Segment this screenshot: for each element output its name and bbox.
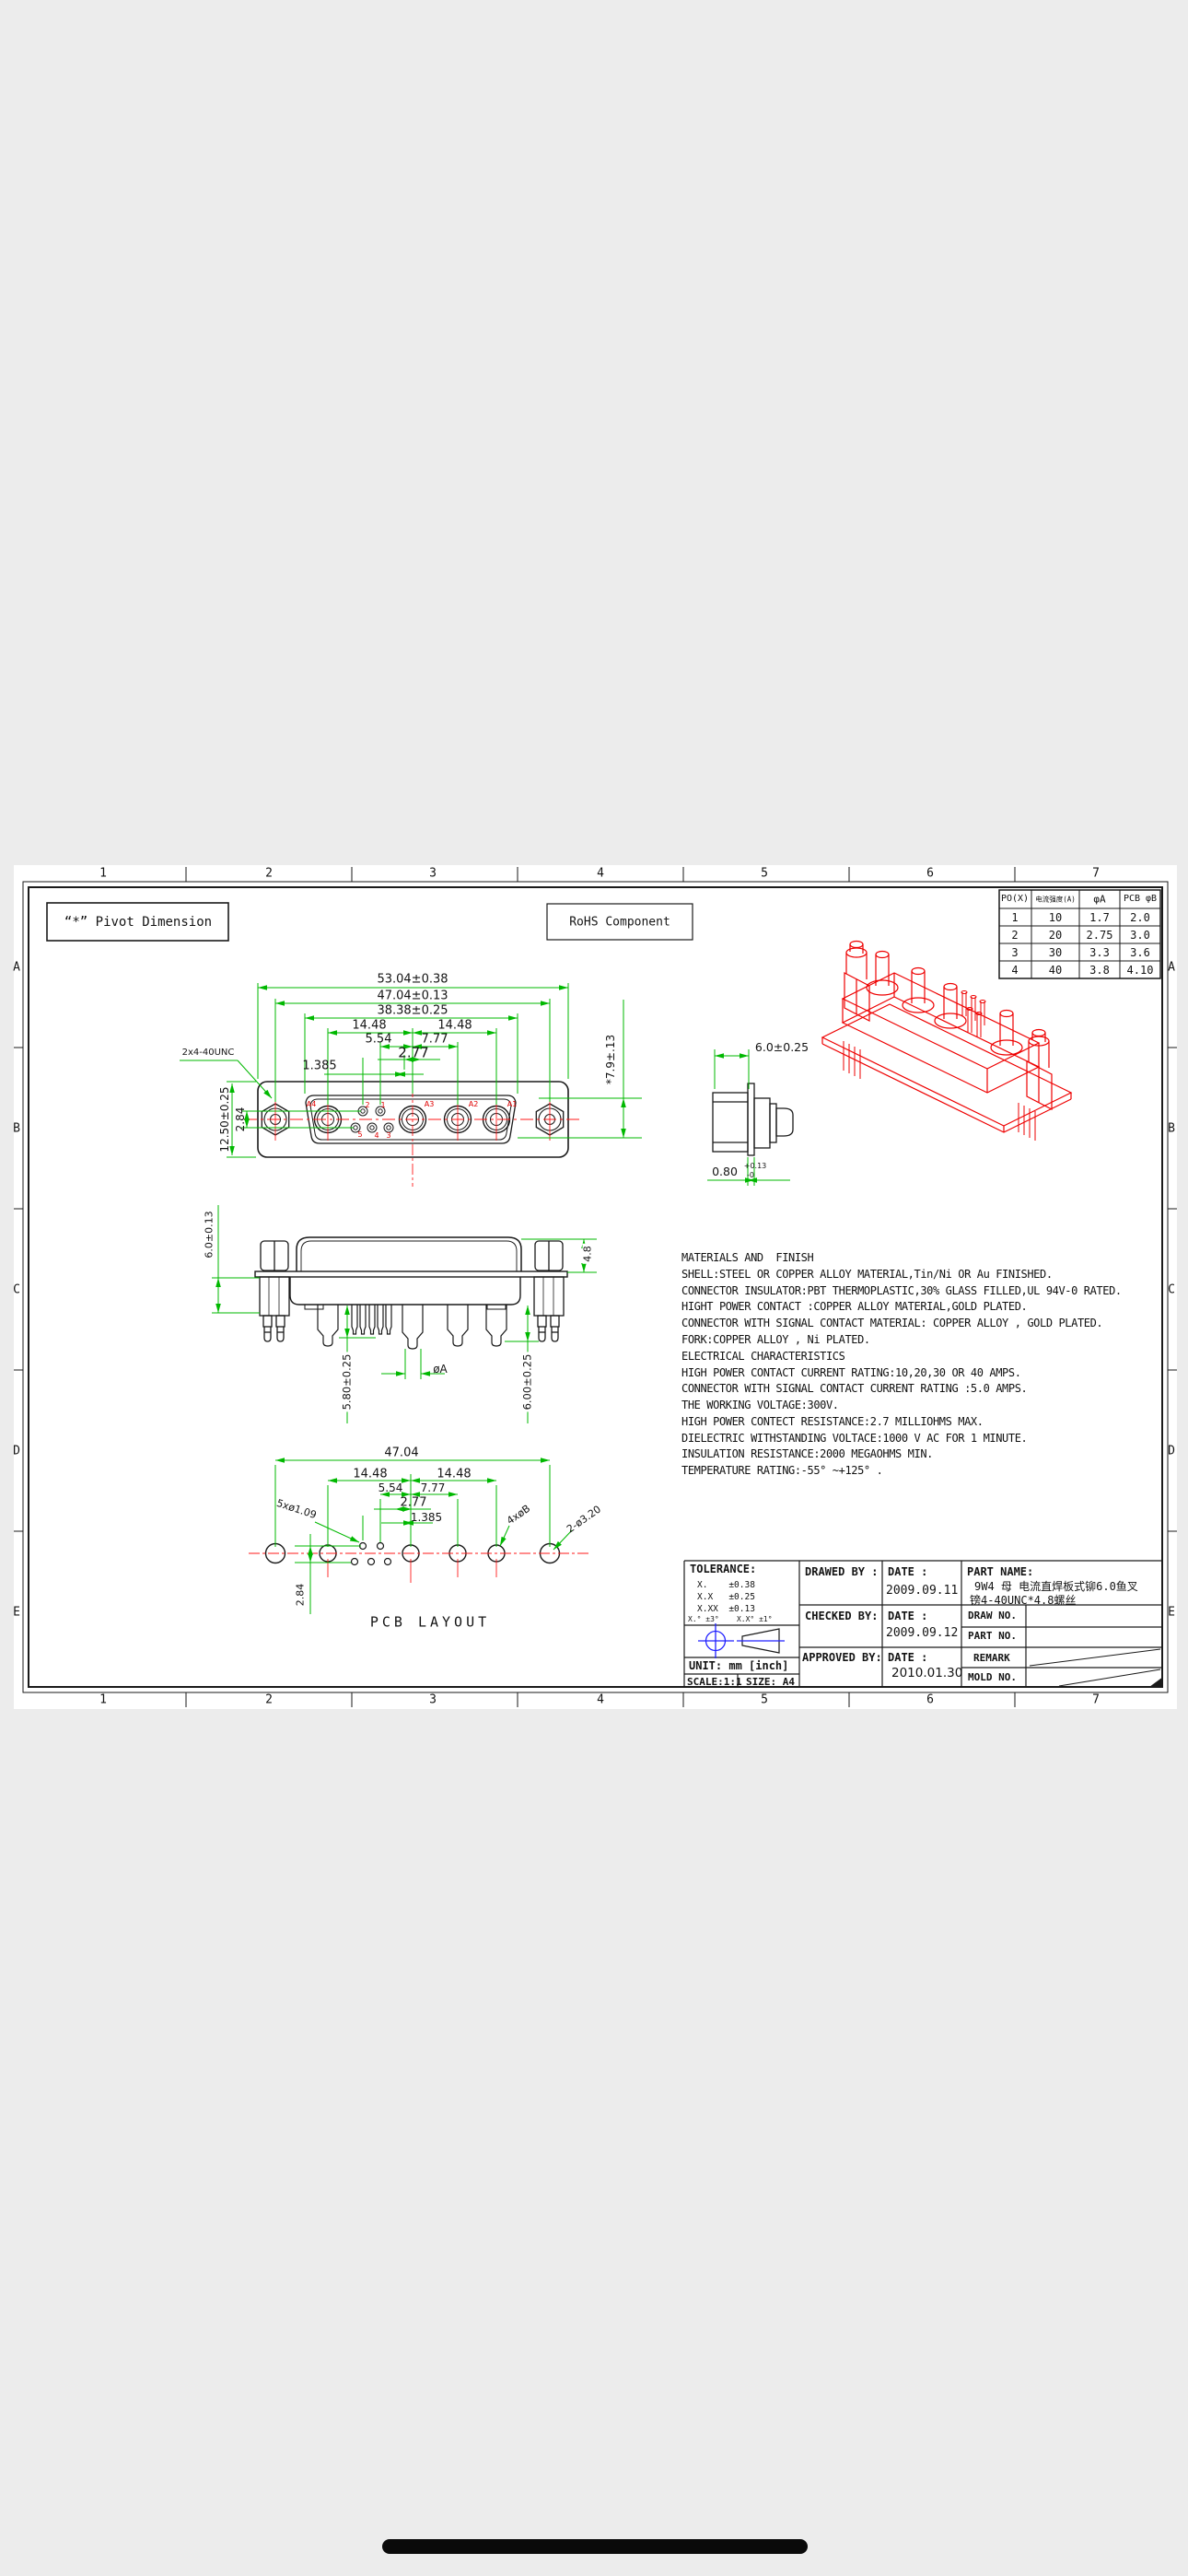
- col-label-bottom: 4: [597, 1694, 604, 1706]
- col-label-bottom: 5: [761, 1694, 768, 1706]
- dim-overall-width: 53.04±0.38: [377, 974, 448, 986]
- dim-pitch-left: 14.48: [352, 1020, 386, 1032]
- table-header: PO(X): [1001, 895, 1029, 904]
- tolerance-row: X. ±0.38: [697, 1581, 755, 1590]
- table-cell: 3.3: [1089, 947, 1110, 958]
- row-label-left: D: [13, 1446, 20, 1458]
- side-view-outline: [713, 1083, 793, 1155]
- tolerance-label: TOLERANCE:: [690, 1563, 756, 1575]
- pcb-dim-4704: 47.04: [384, 1447, 418, 1459]
- dim-mount-span: 47.04±0.13: [377, 990, 448, 1002]
- table-cell: 3.0: [1130, 930, 1150, 941]
- tolerance-angle-row: X.° ±3° X.X° ±1°: [688, 1616, 773, 1623]
- date-drawed: 2009.09.11: [886, 1585, 958, 1597]
- row-label-right: E: [1168, 1607, 1175, 1619]
- dim-flange: 0.80: [712, 1166, 738, 1178]
- table-cell: 1: [1011, 912, 1018, 923]
- dim-row-gap: 2.84: [235, 1107, 246, 1132]
- pcb-dim-14b: 14.48: [437, 1469, 471, 1481]
- col-label-top: 2: [265, 868, 273, 880]
- dim-shell-height: 4.8: [583, 1244, 593, 1264]
- date-label-approved: DATE :: [888, 1652, 927, 1663]
- scale-label: SCALE:1:1: [687, 1677, 742, 1687]
- materials-line: CONNECTOR INSULATOR:PBT THERMOPLASTIC,30…: [681, 1284, 1122, 1297]
- part-name-line2: 镑4-40UNC*4.8螺丝: [970, 1595, 1076, 1606]
- dim-pitch-right: 14.48: [437, 1020, 472, 1032]
- pin-label-a4: A4: [307, 1101, 317, 1108]
- dim-554: 5.54: [366, 1034, 392, 1046]
- pcb-dim-14a: 14.48: [353, 1469, 387, 1481]
- pcb-dim-554: 5.54: [379, 1482, 403, 1493]
- tolerance-row: X.X ±0.25: [697, 1593, 755, 1602]
- projection-symbol: [698, 1623, 785, 1658]
- phone-screen: 1 2 3 4 5 6 7 1 2 3 4 5 6 7 A B C D E A …: [0, 0, 1188, 2576]
- dim-pin-dia: øA: [433, 1364, 448, 1375]
- pin-label-5: 5: [357, 1131, 362, 1139]
- approved-by-label: APPROVED BY:: [802, 1652, 882, 1663]
- pin-label-a1: A1: [507, 1101, 518, 1108]
- dim-shell-width: 38.38±0.25: [377, 1005, 448, 1017]
- table-cell: 30: [1049, 947, 1062, 958]
- materials-line: HIGH POWER CONTECT RESISTANCE:2.7 MILLIO…: [681, 1415, 984, 1428]
- row-label-right: C: [1168, 1284, 1175, 1296]
- materials-line: MATERIALS AND FINISH: [681, 1251, 813, 1264]
- dim-standoff: 6.0±0.13: [204, 1211, 215, 1258]
- col-label-top: 6: [926, 868, 934, 880]
- pin-label-4: 4: [374, 1132, 379, 1140]
- table-cell: 1.7: [1089, 912, 1110, 923]
- dim-pin-length-left: 5.80±0.25: [342, 1352, 353, 1412]
- row-label-left: B: [13, 1123, 20, 1135]
- rear-view-outline: [255, 1237, 567, 1349]
- col-label-bottom: 6: [926, 1694, 934, 1706]
- table-cell: 2: [1011, 930, 1018, 941]
- table-cell: 20: [1049, 930, 1062, 941]
- draw-no-label: DRAW NO.: [968, 1610, 1017, 1621]
- pin-label-1: 1: [380, 1102, 385, 1109]
- materials-line: DIELECTRIC WITHSTANDING VOLTACE:1000 V A…: [681, 1432, 1027, 1445]
- dim-pin-length-right: 6.00±0.25: [522, 1352, 533, 1412]
- materials-line: FORK:COPPER ALLOY , Ni PLATED.: [681, 1333, 870, 1346]
- table-cell: 10: [1049, 912, 1062, 923]
- dim-height: 12.50±0.25: [219, 1086, 230, 1152]
- materials-line: CONNECTOR WITH SIGNAL CONTACT CURRENT RA…: [681, 1382, 1027, 1395]
- drawed-by-label: DRAWED BY :: [805, 1566, 878, 1577]
- home-indicator[interactable]: [382, 2539, 808, 2554]
- table-header: φA: [1093, 895, 1105, 905]
- pin-label-2: 2: [365, 1102, 369, 1109]
- table-cell: 4.10: [1127, 965, 1154, 976]
- dim-pivot-height: *7.9±.13: [605, 1035, 616, 1084]
- materials-line: SHELL:STEEL OR COPPER ALLOY MATERIAL,Tin…: [681, 1268, 1053, 1281]
- col-label-top: 1: [99, 868, 107, 880]
- col-label-bottom: 7: [1092, 1694, 1100, 1706]
- table-cell: 3.8: [1089, 965, 1110, 976]
- pcb-layout-title: PCB LAYOUT: [370, 1616, 490, 1630]
- dimension-lines: [180, 983, 790, 1614]
- table-cell: 3.6: [1130, 947, 1150, 958]
- materials-line: ELECTRICAL CHARACTERISTICS: [681, 1350, 844, 1363]
- table-cell: 2.0: [1130, 912, 1150, 923]
- materials-line: THE WORKING VOLTAGE:300V.: [681, 1399, 839, 1411]
- thread-callout: 2x4-40UNC: [182, 1048, 235, 1058]
- part-no-label: PART NO.: [968, 1631, 1017, 1641]
- col-label-top: 3: [429, 868, 437, 880]
- tolerance-row: X.XX ±0.13: [697, 1605, 755, 1614]
- checked-by-label: CHECKED BY:: [805, 1610, 878, 1622]
- table-cell: 2.75: [1087, 930, 1113, 941]
- materials-line: INSULATION RESISTANCE:2000 MEGAOHMS MIN.: [681, 1447, 933, 1460]
- dim-277: 2.77: [398, 1047, 428, 1060]
- table-header: 电流强度(A): [1035, 896, 1076, 903]
- materials-line: HIGH POWER CONTACT CURRENT RATING:10,20,…: [681, 1366, 1021, 1379]
- dim-flange-tol-up: +0.13: [744, 1163, 767, 1170]
- row-label-right: B: [1168, 1123, 1175, 1135]
- row-label-right: A: [1168, 962, 1175, 974]
- date-approved: 2010.01.30: [891, 1668, 962, 1680]
- table-header: PCB φB: [1124, 895, 1157, 904]
- pcb-dim-777: 7.77: [421, 1482, 446, 1493]
- pin-label-a3: A3: [425, 1101, 435, 1108]
- pcb-dim-284: 2.84: [296, 1584, 306, 1607]
- part-name-line1: 9W4 母 电流直焊板式铆6.0鱼叉: [974, 1581, 1138, 1592]
- pcb-dim-277: 2.77: [401, 1497, 427, 1509]
- isometric-view: [822, 942, 1071, 1142]
- row-label-left: E: [13, 1607, 20, 1619]
- dim-1385: 1.385: [302, 1060, 336, 1072]
- table-cell: 3: [1011, 947, 1018, 958]
- size-label: SIZE: A4: [746, 1677, 795, 1687]
- row-label-right: D: [1168, 1446, 1175, 1458]
- remark-label: REMARK: [973, 1653, 1010, 1663]
- col-label-top: 4: [597, 868, 604, 880]
- col-label-bottom: 3: [429, 1694, 437, 1706]
- col-label-top: 7: [1092, 868, 1100, 880]
- pivot-dimension-note: “*” Pivot Dimension: [64, 916, 212, 929]
- row-label-left: A: [13, 962, 20, 974]
- materials-line: CONNECTOR WITH SIGNAL CONTACT MATERIAL: …: [681, 1317, 1102, 1329]
- col-label-bottom: 1: [99, 1694, 107, 1706]
- pin-label-3: 3: [386, 1132, 390, 1140]
- pcb-dim-1385: 1.385: [411, 1512, 442, 1523]
- row-label-left: C: [13, 1284, 20, 1296]
- pin-label-a2: A2: [469, 1101, 479, 1108]
- rohs-note: RoHS Component: [569, 917, 670, 929]
- materials-line: HIGHT POWER CONTACT :COPPER ALLOY MATERI…: [681, 1300, 1027, 1313]
- col-label-bottom: 2: [265, 1694, 273, 1706]
- mold-no-label: MOLD NO.: [968, 1672, 1017, 1682]
- dim-flange-tol-dn: -0: [747, 1172, 754, 1179]
- col-label-top: 5: [761, 868, 768, 880]
- part-name-label: PART NAME:: [967, 1566, 1033, 1577]
- date-label-drawed: DATE :: [888, 1566, 927, 1577]
- date-checked: 2009.09.12: [886, 1627, 958, 1639]
- dim-contact-depth: 6.0±0.25: [755, 1042, 809, 1054]
- unit-label: UNIT: mm [inch]: [689, 1660, 788, 1671]
- date-label-checked: DATE :: [888, 1610, 927, 1622]
- materials-line: TEMPERATURE RATING:-55° ~+125° .: [681, 1464, 882, 1477]
- table-cell: 40: [1049, 965, 1062, 976]
- table-cell: 4: [1011, 965, 1018, 976]
